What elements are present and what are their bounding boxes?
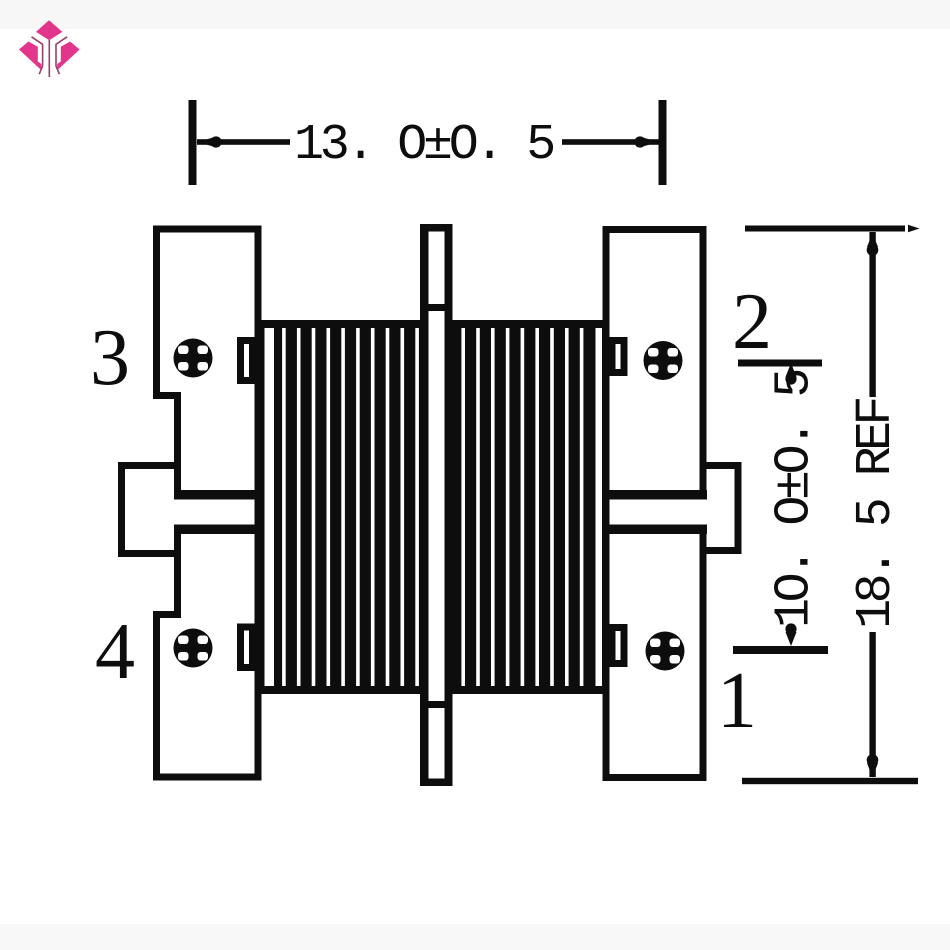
svg-text:3: 3 xyxy=(90,314,130,402)
svg-text:18. 5 REF: 18. 5 REF xyxy=(848,399,905,629)
svg-text:4: 4 xyxy=(95,608,135,696)
svg-text:13. O±O. 5: 13. O±O. 5 xyxy=(294,117,553,174)
svg-text:2: 2 xyxy=(732,278,772,366)
svg-text:1O. O±O. 5: 1O. O±O. 5 xyxy=(767,371,824,628)
svg-text:1: 1 xyxy=(717,657,757,745)
